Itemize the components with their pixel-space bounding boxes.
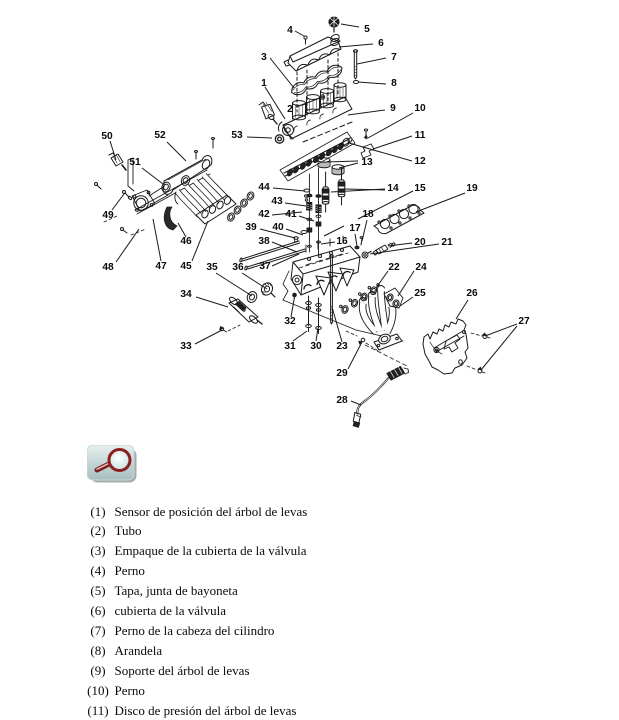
svg-text:43: 43 bbox=[271, 196, 283, 207]
svg-text:2: 2 bbox=[287, 104, 293, 115]
svg-text:40: 40 bbox=[272, 222, 284, 233]
svg-text:24: 24 bbox=[415, 262, 427, 273]
svg-text:7: 7 bbox=[391, 52, 397, 63]
svg-text:50: 50 bbox=[101, 131, 113, 142]
svg-text:41: 41 bbox=[285, 209, 297, 220]
svg-text:13: 13 bbox=[361, 157, 373, 168]
svg-text:20: 20 bbox=[414, 237, 426, 248]
svg-text:44: 44 bbox=[258, 182, 270, 193]
svg-text:35: 35 bbox=[206, 262, 218, 273]
svg-text:34: 34 bbox=[180, 289, 192, 300]
svg-text:14: 14 bbox=[387, 183, 399, 194]
svg-text:9: 9 bbox=[390, 103, 396, 114]
svg-text:45: 45 bbox=[180, 261, 192, 272]
svg-text:10: 10 bbox=[414, 103, 426, 114]
svg-text:42: 42 bbox=[258, 209, 270, 220]
svg-text:37: 37 bbox=[259, 261, 271, 272]
svg-text:29: 29 bbox=[336, 368, 348, 379]
svg-text:52: 52 bbox=[154, 130, 166, 141]
svg-text:36: 36 bbox=[232, 262, 244, 273]
svg-text:18: 18 bbox=[362, 209, 374, 220]
svg-text:17: 17 bbox=[349, 223, 361, 234]
svg-text:30: 30 bbox=[310, 341, 322, 352]
svg-text:1: 1 bbox=[261, 78, 267, 89]
svg-text:53: 53 bbox=[231, 130, 243, 141]
svg-text:31: 31 bbox=[284, 341, 296, 352]
svg-text:22: 22 bbox=[388, 262, 400, 273]
svg-text:47: 47 bbox=[155, 261, 167, 272]
svg-text:12: 12 bbox=[414, 156, 426, 167]
svg-text:21: 21 bbox=[441, 237, 453, 248]
svg-text:4: 4 bbox=[287, 25, 293, 36]
svg-text:27: 27 bbox=[518, 316, 530, 327]
svg-text:23: 23 bbox=[336, 341, 348, 352]
svg-text:49: 49 bbox=[102, 210, 114, 221]
svg-text:33: 33 bbox=[180, 341, 192, 352]
svg-text:46: 46 bbox=[180, 236, 192, 247]
svg-text:11: 11 bbox=[415, 130, 426, 141]
svg-text:15: 15 bbox=[414, 183, 426, 194]
svg-text:3: 3 bbox=[261, 52, 267, 63]
svg-text:26: 26 bbox=[466, 288, 478, 299]
svg-text:19: 19 bbox=[466, 183, 478, 194]
svg-text:39: 39 bbox=[245, 222, 257, 233]
svg-text:32: 32 bbox=[284, 316, 296, 327]
svg-text:28: 28 bbox=[336, 395, 348, 406]
svg-text:38: 38 bbox=[258, 236, 270, 247]
svg-text:25: 25 bbox=[414, 288, 426, 299]
svg-text:48: 48 bbox=[102, 262, 114, 273]
svg-text:6: 6 bbox=[378, 38, 384, 49]
svg-text:8: 8 bbox=[391, 78, 397, 89]
svg-text:51: 51 bbox=[129, 157, 141, 168]
svg-text:5: 5 bbox=[364, 24, 370, 35]
svg-text:16: 16 bbox=[336, 236, 348, 247]
